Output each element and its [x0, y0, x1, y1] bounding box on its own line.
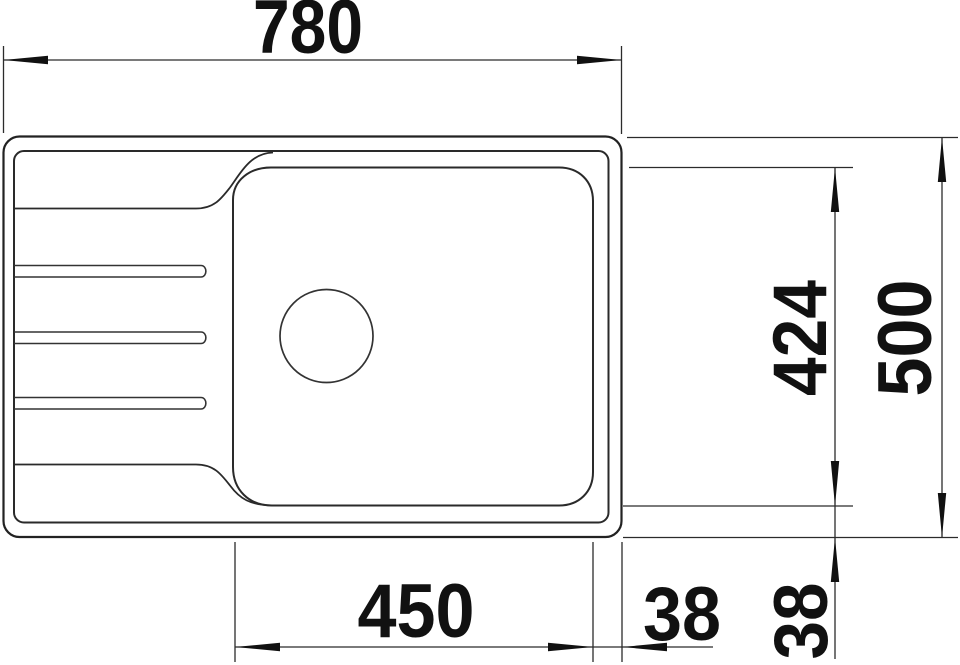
- arrowhead-top: [938, 138, 946, 183]
- arrowhead-bottom: [938, 493, 946, 538]
- dim-bowl-offset-right: 38: [622, 572, 721, 657]
- arrowhead-bottom: [831, 461, 839, 506]
- dim-bowl-width: 450: [235, 542, 713, 662]
- dim-label-38-vertical: 38: [759, 583, 844, 660]
- sink-inner-rim: [14, 151, 609, 523]
- drainboard-top-edge: [14, 153, 273, 209]
- dimension-annotations: 780 500 424: [4, 0, 959, 662]
- dim-label-424: 424: [758, 280, 843, 396]
- dim-label-450: 450: [358, 569, 475, 654]
- drain-hole: [280, 290, 373, 383]
- dim-label-500: 500: [863, 280, 948, 397]
- sink-outer-edge: [4, 137, 622, 538]
- drainboard-groove-2: [14, 332, 206, 344]
- drainboard-groove-1: [14, 266, 206, 278]
- drainboard: [14, 153, 273, 506]
- dim-overall-width: 780: [4, 0, 622, 134]
- arrowhead-right: [577, 56, 622, 64]
- drawing-canvas: 780 500 424: [0, 0, 960, 665]
- dim-label-780: 780: [253, 0, 363, 70]
- drainboard-bottom-edge: [14, 465, 273, 506]
- bowl-outline: [233, 168, 593, 506]
- drainboard-groove-3: [14, 398, 206, 410]
- dim-bowl-offset-bottom: 38: [759, 538, 844, 660]
- bowl: [233, 168, 593, 506]
- arrowhead-left: [4, 56, 49, 64]
- arrowhead-right: [548, 643, 593, 651]
- arrowhead-up: [831, 538, 839, 583]
- sink-technical-drawing: 780 500 424: [0, 0, 960, 665]
- arrowhead-left: [235, 643, 280, 651]
- arrowhead-top: [831, 168, 839, 213]
- dim-label-38-horizontal: 38: [643, 572, 721, 657]
- sink-body: [4, 137, 622, 538]
